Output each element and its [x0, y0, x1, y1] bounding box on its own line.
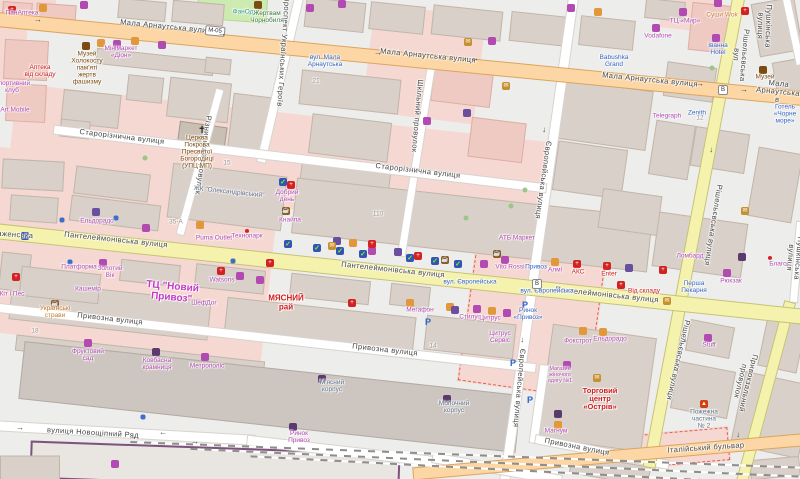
poi-label: Готель «Чорне море» — [774, 103, 796, 124]
building — [467, 117, 526, 163]
poi-label: Привоз — [525, 263, 547, 270]
poi-label: Стилус — [459, 313, 481, 320]
bus-icon — [114, 216, 119, 221]
building — [9, 194, 59, 223]
P-icon: P — [424, 318, 432, 326]
shop-icon — [652, 24, 660, 32]
poi-label: АТБ Маркет — [499, 234, 535, 241]
shop-icon — [423, 117, 431, 125]
poi-label: Babushka Grand — [600, 54, 629, 68]
ph-icon: + — [617, 281, 625, 289]
shop-icon — [712, 34, 720, 42]
poi-label: М'ясний корпус — [320, 379, 344, 393]
street-label: Пушкінська вулиця — [784, 236, 800, 281]
poi-label: вул. Європейська — [520, 287, 573, 294]
building — [126, 74, 165, 104]
poi-label: ТЦ «Мир» — [670, 17, 700, 24]
poi-label: 15 — [223, 159, 230, 166]
bag-icon — [196, 221, 204, 229]
oneway-arrow-icon: → — [696, 80, 704, 88]
poi-label: Кіт і Пес — [0, 290, 24, 297]
shop-icon — [158, 41, 166, 49]
poi-label: Пожежна частина № 2 — [690, 408, 718, 429]
shop-icon — [503, 309, 511, 317]
road-ref-badge: В — [718, 85, 728, 95]
oneway-arrow-icon: → — [129, 433, 137, 441]
shop-icon — [111, 460, 119, 468]
tv-icon — [451, 306, 459, 314]
post-icon: ✉ — [464, 38, 472, 46]
shop-icon — [84, 339, 92, 347]
post-icon: ✉ — [741, 207, 749, 215]
poi-label: Мінімаркет «Діон» — [105, 45, 138, 59]
oneway-arrow-icon: → — [374, 49, 382, 57]
tv-icon — [92, 208, 100, 216]
bag-icon — [579, 327, 587, 335]
poi-label: Vito Rossi — [495, 263, 524, 270]
poi-label: Мегафон — [406, 306, 434, 313]
atm-icon: ✓ — [313, 244, 321, 252]
ph-icon: + — [741, 7, 749, 15]
atm-icon: ✓ — [284, 240, 292, 248]
shop-icon — [488, 37, 496, 45]
shop-icon — [306, 4, 314, 12]
cafe-icon: ☕ — [441, 256, 449, 264]
atm-icon: ✓ — [279, 178, 287, 186]
poi-label: Рюкзак — [720, 277, 742, 284]
poi-label: АКС — [572, 268, 585, 275]
building — [368, 1, 426, 35]
shop-icon — [201, 353, 209, 361]
poi-label: Фокстрот — [564, 337, 592, 344]
shop-icon — [480, 260, 488, 268]
street-label: Пушкінська вулиця — [755, 4, 773, 48]
post-icon: ✉ — [593, 374, 601, 382]
poi-label: Ковбасна крамниця — [142, 357, 171, 371]
poi-label: Платформа — [61, 263, 97, 270]
bag-icon — [131, 37, 139, 45]
poi-label: Торговий центр «Острів» — [583, 387, 618, 411]
poi-label: Фруктовий сад — [72, 348, 104, 362]
bag-icon — [594, 8, 602, 16]
tv-icon — [625, 264, 633, 272]
poi-label: Золотий Вік — [98, 265, 123, 279]
poi-label: Цитрус Сервіс — [489, 330, 510, 344]
poi-label: 110 — [373, 210, 383, 217]
street-label: Мала Арнаутська в — [755, 78, 800, 106]
poi-label: Аптека від складу — [24, 64, 55, 78]
poi-label: Жертвам Чорнобиля — [250, 10, 283, 24]
ph-icon: + — [368, 240, 376, 248]
oneway-arrow-icon: → — [708, 146, 717, 155]
poi-label: 35-А — [169, 218, 183, 225]
ph-icon: + — [659, 266, 667, 274]
ph-icon: + — [573, 260, 581, 268]
map-canvas[interactable]: +++++++++++++✓✓✓✓✓✓✓✓✓✉✉✉✉✉✉☕☕☕☕PPPP▲✝Ма… — [0, 0, 800, 479]
building — [598, 188, 663, 236]
poi-label: Кашемір — [75, 285, 101, 292]
bag-icon — [551, 258, 559, 266]
shop-icon — [80, 1, 88, 9]
poi-label: Ринок Привоз — [288, 430, 310, 444]
oneway-arrow-icon: → — [740, 86, 748, 94]
poi-label: Vodafone — [644, 32, 671, 39]
poi-label: ШефДог — [191, 299, 216, 306]
poi-label: Перша Пекарня — [681, 280, 707, 294]
poi-label: Спортивний клуб — [0, 80, 30, 94]
oneway-arrow-icon: → — [681, 335, 691, 345]
poi-label: Ломбард — [677, 252, 704, 259]
poi-label: Puma Outlet — [196, 234, 232, 241]
oneway-arrow-icon: → — [519, 336, 528, 345]
ph-icon: + — [266, 259, 274, 267]
poi-label: Суши Wok — [706, 11, 737, 18]
bank-icon — [554, 410, 562, 418]
oneway-arrow-icon: → — [191, 438, 199, 446]
poi-label: 14 — [429, 342, 436, 349]
poi-label: 12 — [696, 114, 703, 121]
oneway-arrow-icon: → — [16, 424, 24, 432]
building — [204, 57, 232, 76]
bus-icon — [60, 218, 65, 223]
poi-label: Благо — [769, 260, 786, 267]
building — [747, 147, 800, 224]
poi-label: Ринок «Привоз» — [513, 307, 542, 321]
poi-label: Метрополіс — [190, 362, 225, 369]
poi-label: Церква Покрова Пресвятої Богородиці (УПЦ… — [180, 134, 213, 169]
shop-icon — [723, 269, 731, 277]
poi-label: Музей — [756, 73, 775, 80]
building — [648, 120, 696, 181]
poi-label: Музей Холокосту пам'яті жертв фашизму — [71, 50, 102, 85]
poi-label: Магазин жіночого одягу №1 — [548, 367, 572, 385]
tree-icon — [710, 66, 715, 71]
shop-icon — [473, 305, 481, 313]
poi-label: Від складу — [628, 287, 660, 294]
bank-icon — [152, 348, 160, 356]
bag-icon — [39, 4, 47, 12]
tree-icon — [464, 216, 469, 221]
shop-icon — [338, 0, 346, 8]
poi-label: Добрий день — [276, 189, 299, 203]
fire-icon: ▲ — [700, 400, 708, 408]
oneway-arrow-icon: → — [34, 16, 42, 24]
tree-icon — [509, 204, 514, 209]
poi-label: Молочний корпус — [439, 400, 470, 414]
bus-icon — [141, 415, 146, 420]
atm-icon: ✓ — [431, 257, 439, 265]
poi-label: 21 — [312, 77, 319, 84]
tv-icon — [463, 109, 471, 117]
tree-icon — [143, 156, 148, 161]
cafe-icon: ☕ — [282, 207, 290, 215]
poi-label: МЯСНИЙ рай — [268, 294, 303, 311]
building — [1, 158, 64, 191]
shop-icon — [679, 8, 687, 16]
shop-icon — [236, 272, 244, 280]
shop-icon — [714, 0, 722, 7]
oneway-arrow-icon: → — [734, 430, 743, 439]
poi-label: Watsons — [209, 276, 234, 283]
poi-label: Enter — [601, 270, 617, 277]
poi-label: Цитрус — [479, 314, 500, 321]
poi-label: Українські страви — [40, 305, 70, 319]
poi-label: Ельдорадо — [593, 335, 627, 342]
post-icon: ✉ — [328, 242, 336, 250]
shop-icon — [256, 276, 264, 284]
building — [690, 126, 751, 174]
bank-icon — [738, 253, 746, 261]
post-icon: ✉ — [663, 297, 671, 305]
ph-icon: + — [287, 181, 295, 189]
ph-icon: + — [12, 273, 20, 281]
P-icon: P — [526, 396, 534, 404]
oneway-arrow-icon: → — [159, 430, 167, 438]
ph-icon: + — [217, 267, 225, 275]
atm-icon: ✓ — [406, 254, 414, 262]
building — [578, 15, 636, 51]
poi-label: 18 — [31, 327, 38, 334]
post-icon: ✉ — [502, 82, 510, 90]
poi-label: Алмі — [548, 266, 562, 273]
poi-label: Art Mobile — [0, 106, 29, 113]
oneway-arrow-icon: → — [471, 55, 479, 63]
atm-icon: ✓ — [336, 247, 344, 255]
oneway-arrow-icon: → — [218, 30, 226, 38]
oneway-arrow-icon: → — [541, 126, 550, 135]
ph-icon: + — [348, 299, 356, 307]
building — [166, 77, 232, 124]
tv-icon — [394, 248, 402, 256]
shop-icon — [368, 247, 376, 255]
poi-label: Telegraph — [653, 112, 682, 119]
atm-icon: ✓ — [359, 250, 367, 258]
road-ref-badge: В — [532, 279, 542, 289]
atm-icon: ✓ — [454, 260, 462, 268]
tree-icon — [523, 188, 528, 193]
shop-icon — [567, 4, 575, 12]
poi-label: Іванна Hotel — [708, 42, 728, 56]
ph-icon: + — [414, 252, 422, 260]
poi-label: Магнум — [545, 427, 568, 434]
poi-label: Технопарк — [231, 232, 262, 239]
poi-label: Stuff — [702, 341, 715, 348]
cafe-icon: ☕ — [493, 250, 501, 258]
building — [0, 456, 60, 479]
bus-icon — [231, 259, 236, 264]
shop-icon — [142, 224, 150, 232]
poi-label: Кнайпа — [279, 216, 301, 223]
poi-label: вул. Європейська — [443, 278, 496, 285]
bag-icon — [349, 239, 357, 247]
ph-icon: + — [603, 262, 611, 270]
poi-label: Ельдорадо — [80, 217, 114, 224]
dot-icon — [768, 256, 772, 260]
building — [556, 79, 653, 151]
poi-label: вул. Мала Арнаутська — [308, 54, 342, 68]
mus-icon — [82, 42, 90, 50]
